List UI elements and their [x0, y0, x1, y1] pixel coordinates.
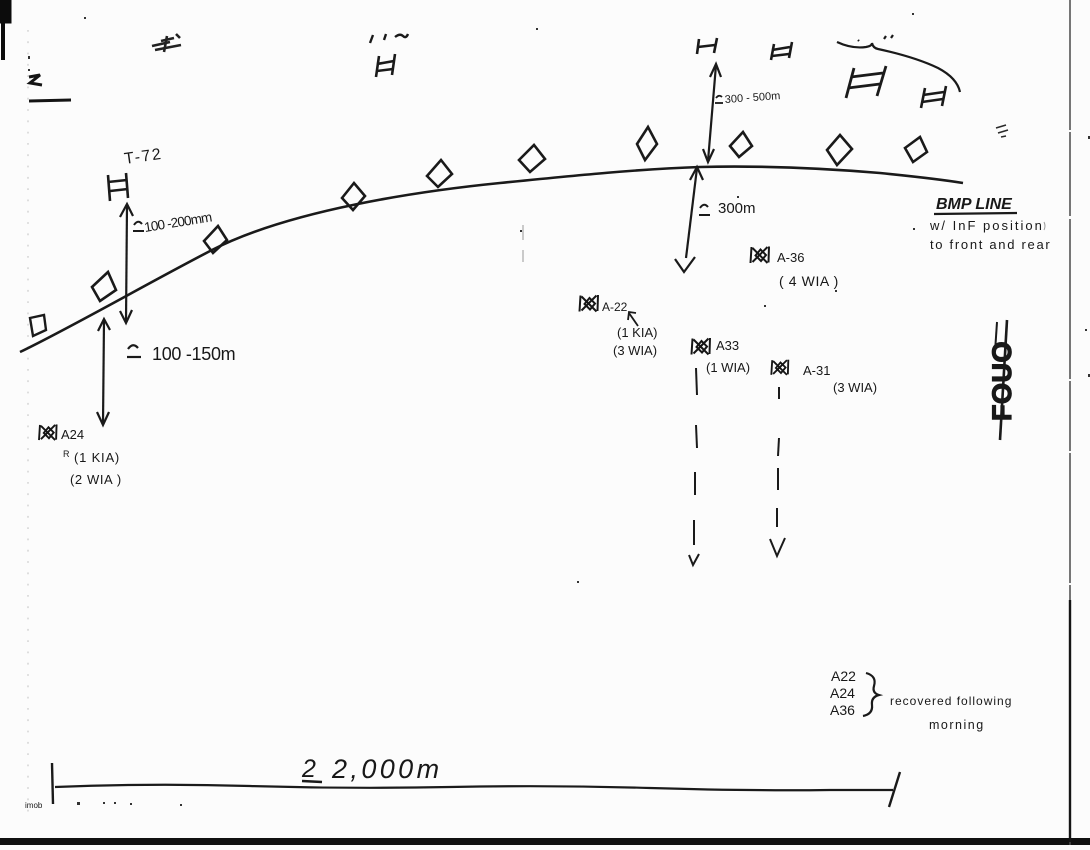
svg-text:morning: morning: [929, 718, 985, 732]
svg-text:to front and rear: to front and rear: [930, 237, 1051, 252]
svg-text:w/ InF position: w/ InF position: [929, 218, 1044, 233]
svg-text:(1 KIA): (1 KIA): [74, 450, 120, 465]
svg-text:A24: A24: [830, 685, 855, 701]
svg-text:(3 WIA): (3 WIA): [833, 380, 877, 395]
svg-text:A-31: A-31: [803, 363, 830, 378]
svg-text:(1 KIA): (1 KIA): [617, 325, 657, 340]
svg-text:imob: imob: [25, 801, 43, 810]
svg-text:A22: A22: [831, 668, 856, 684]
svg-text:A-22: A-22: [602, 300, 628, 314]
svg-text:(2 WIA ): (2 WIA ): [70, 472, 122, 487]
svg-text:(1 WIA): (1 WIA): [706, 360, 750, 375]
svg-text:recovered following: recovered following: [890, 694, 1012, 708]
svg-text:A36: A36: [830, 702, 855, 718]
svg-text:A-36: A-36: [777, 250, 804, 265]
svg-text:(3 WIA): (3 WIA): [613, 343, 657, 358]
svg-text:A24: A24: [61, 427, 84, 442]
svg-text:A33: A33: [716, 338, 739, 353]
svg-text:R: R: [63, 449, 70, 459]
svg-text:100 -150m: 100 -150m: [152, 344, 235, 364]
svg-text:( 4 WIA ): ( 4 WIA ): [779, 273, 839, 289]
svg-text:300m: 300m: [718, 200, 756, 217]
svg-text:2: 2: [301, 755, 316, 783]
svg-text:2,000m: 2,000m: [331, 754, 442, 784]
svg-text:BMP LINE: BMP LINE: [936, 196, 1013, 213]
